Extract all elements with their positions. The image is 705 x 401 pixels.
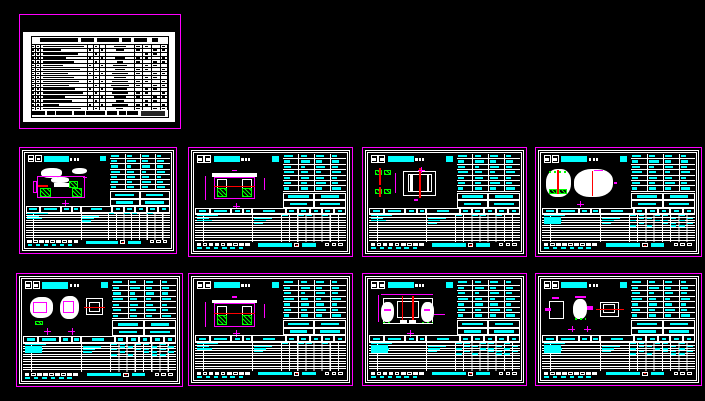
spec-cell	[647, 308, 663, 313]
spec-text-bar	[130, 309, 136, 311]
stamp-text	[545, 158, 548, 161]
strip-title-text	[258, 243, 291, 246]
column-header-row	[542, 208, 695, 215]
spec-cell	[679, 291, 695, 296]
table-tick-bar	[639, 223, 645, 224]
spec-text-bar	[111, 165, 118, 167]
spec-text-bar	[665, 160, 671, 162]
spec-cell	[110, 180, 125, 184]
spec-cell	[457, 186, 473, 190]
spec-cell	[647, 286, 663, 291]
header-dash	[74, 284, 76, 287]
annotation-magenta	[384, 309, 390, 312]
column-header-cell	[252, 208, 285, 215]
table-tick-bar	[630, 215, 636, 216]
spec-box-text	[288, 195, 308, 197]
strip-note-text	[128, 241, 141, 244]
spec-box-text	[288, 323, 308, 326]
hatch-block	[559, 189, 567, 194]
spec-cell	[679, 176, 695, 180]
fill-white	[410, 174, 413, 192]
spec-cell	[631, 176, 647, 180]
sheet-9[interactable]	[535, 273, 702, 386]
strip-title-text	[258, 372, 291, 375]
spec-text-bar	[142, 181, 151, 183]
cad-canvas	[0, 0, 705, 401]
hatch-block	[72, 188, 82, 196]
strip-dash	[586, 247, 591, 249]
column-header-cell	[683, 335, 695, 342]
spec-cell	[663, 280, 679, 285]
sheet-5[interactable]	[535, 147, 702, 257]
table-tick-bar	[168, 351, 174, 352]
annotation-magenta	[587, 306, 592, 310]
spec-text-bar	[475, 298, 482, 300]
column-header-text	[289, 210, 294, 212]
strip-box	[395, 243, 400, 246]
spec-cell	[504, 302, 520, 307]
spec-cell	[125, 164, 140, 168]
spec-text-bar	[332, 171, 340, 173]
table-text-bar	[197, 346, 209, 347]
spec-cell	[472, 308, 488, 313]
strip-dash	[44, 244, 48, 246]
strip-note-text	[476, 372, 490, 375]
sheet-4[interactable]	[362, 147, 527, 257]
strip-title-text	[86, 241, 118, 244]
spec-text-bar	[665, 155, 672, 157]
table-tick-bar	[679, 225, 685, 226]
spec-text-bar	[649, 177, 657, 179]
strip-box	[574, 372, 579, 376]
hatch-block	[549, 189, 557, 194]
spec-box-cell	[314, 200, 346, 208]
spec-box-text	[119, 331, 137, 334]
spec-cell	[663, 297, 679, 302]
spec-cell	[472, 165, 488, 169]
spec-cell	[110, 154, 125, 158]
spec-text-bar	[665, 292, 673, 294]
column-header-cell	[139, 336, 151, 343]
strip-dash	[34, 377, 39, 379]
spec-text-bar	[475, 303, 483, 305]
spec-cell	[140, 170, 155, 174]
spec-text-bar	[332, 155, 337, 157]
spec-cell	[647, 297, 663, 302]
column-header-text	[463, 338, 468, 340]
bottom-table	[542, 342, 695, 371]
strip-box	[239, 372, 244, 376]
header-strip	[195, 154, 281, 165]
spec-cell	[160, 308, 176, 313]
spec-box-cell	[283, 200, 315, 208]
strip-box	[377, 243, 382, 246]
spec-cell	[679, 297, 695, 302]
table-tick-bar	[464, 343, 469, 344]
strip-dash	[230, 376, 235, 378]
spec-text-bar	[506, 187, 514, 189]
column-header-cell	[426, 335, 459, 342]
column-header-text	[650, 210, 655, 212]
table-tick-bar	[111, 349, 117, 350]
spec-text-bar	[162, 292, 168, 294]
spec-cell	[504, 313, 520, 318]
table-tick-bar	[496, 346, 501, 347]
spec-cell	[504, 291, 520, 296]
spec-cell	[457, 302, 473, 307]
spec-text-bar	[681, 160, 688, 162]
spec-cell	[631, 165, 647, 169]
sheet-2[interactable]	[19, 147, 177, 254]
spec-box-cell	[140, 191, 170, 198]
spec-box-row	[631, 320, 695, 328]
column-header-text	[373, 210, 381, 212]
spec-text-bar	[316, 309, 326, 311]
column-header-cell	[298, 208, 310, 215]
strip-box	[325, 243, 330, 246]
column-header-cell	[542, 335, 557, 342]
spec-cell	[125, 185, 140, 189]
spec-table	[110, 154, 170, 206]
spec-text-bar	[458, 309, 466, 311]
spec-text-bar	[506, 166, 512, 168]
spec-text-bar	[284, 309, 292, 311]
column-header-text	[437, 338, 449, 340]
spec-text-bar	[649, 187, 656, 189]
strip-note-text	[132, 373, 146, 376]
table-tick-bar	[322, 343, 327, 344]
hatch-block	[69, 181, 78, 188]
table-grid-right	[281, 342, 346, 371]
column-header-text	[388, 210, 401, 212]
column-header-text	[420, 210, 424, 212]
strip-box	[586, 243, 591, 246]
strip-box	[332, 372, 337, 376]
spec-cell	[647, 181, 663, 185]
strip-box	[39, 240, 44, 243]
sheet-3[interactable]	[188, 147, 353, 257]
table-text-bar	[82, 216, 99, 217]
spec-box-cell	[488, 320, 520, 328]
spec-text-bar	[316, 314, 322, 316]
column-header-cell	[579, 335, 591, 342]
sheet-title-text	[42, 282, 68, 289]
strip-dash	[25, 377, 30, 379]
strip-box	[74, 240, 79, 243]
spec-text-bar	[301, 309, 307, 311]
stamp-text	[545, 284, 548, 287]
spec-cell	[314, 291, 330, 296]
table-tick-bar	[679, 348, 685, 349]
spec-cell	[330, 286, 346, 291]
spec-text-bar	[458, 281, 467, 283]
table-tick-bar	[152, 351, 158, 352]
table-tick-bar	[663, 223, 669, 224]
spec-text-bar	[490, 166, 498, 168]
spec-text-bar	[681, 171, 689, 173]
spec-cell	[504, 181, 520, 185]
table-tick-bar	[496, 353, 501, 354]
strip-box	[25, 373, 30, 377]
spec-cell	[298, 297, 314, 302]
sheet-6[interactable]	[16, 273, 183, 387]
spec-text-bar	[332, 298, 340, 300]
stamp-text	[206, 158, 209, 161]
sheet-content	[542, 280, 695, 379]
strip-box	[556, 372, 561, 376]
spec-cell	[125, 170, 140, 174]
spec-text-bar	[649, 155, 655, 157]
strip-title-text	[606, 372, 640, 375]
strip-dash	[67, 377, 72, 379]
spec-cell	[679, 181, 695, 185]
spec-cell	[504, 159, 520, 163]
annotation-magenta	[83, 177, 86, 179]
spec-cell	[663, 181, 679, 185]
spec-text-bar	[142, 165, 150, 167]
dim-line	[205, 176, 206, 200]
strip-seal-box	[642, 243, 647, 247]
spec-text-bar	[162, 315, 170, 317]
spec-cell	[283, 181, 299, 185]
spec-box-row	[110, 199, 170, 206]
spec-text-bar	[130, 315, 137, 317]
column-header-text	[214, 338, 227, 340]
outline-magenta	[63, 301, 74, 314]
spec-cell	[647, 280, 663, 285]
spec-table	[457, 280, 520, 335]
spec-text-bar	[332, 292, 338, 294]
sheet-title-text	[214, 156, 240, 162]
stamp-text	[372, 284, 375, 287]
spec-cell	[298, 308, 314, 313]
spec-cell	[112, 286, 128, 291]
spec-cell	[504, 286, 520, 291]
spec-cell	[679, 286, 695, 291]
strip-box	[203, 243, 208, 246]
spec-cell	[160, 291, 176, 296]
spec-cell	[647, 302, 663, 307]
spec-cell	[488, 280, 504, 285]
spec-text-bar	[475, 182, 481, 184]
spec-cell	[504, 165, 520, 169]
spec-text-bar	[127, 171, 134, 173]
strip-box	[687, 372, 692, 376]
column-header-cell	[460, 208, 472, 215]
spec-box-row	[457, 193, 520, 201]
spec-cell	[298, 291, 314, 296]
annotation-magenta	[414, 199, 418, 201]
spec-text-bar	[142, 171, 147, 173]
table-text-bar	[83, 349, 95, 350]
spec-text-bar	[332, 182, 338, 184]
strip-box	[197, 372, 202, 376]
table-tick-bar	[663, 215, 669, 216]
spec-cell	[457, 181, 473, 185]
spec-cell	[488, 308, 504, 313]
table-highlight-block	[371, 345, 388, 352]
column-header-text	[593, 338, 597, 340]
drawing-area	[369, 291, 455, 336]
spec-text-bar	[506, 287, 513, 289]
spec-cell	[457, 176, 473, 180]
spec-cell	[330, 176, 346, 180]
bottom-table	[369, 342, 520, 371]
spec-cell	[330, 170, 346, 174]
axis-line	[214, 186, 255, 187]
column-header-row	[195, 208, 346, 215]
spec-text-bar	[458, 177, 464, 179]
table-tick-bar	[480, 348, 485, 349]
spec-text-bar	[111, 155, 119, 157]
spec-cell	[647, 165, 663, 169]
sheet-7[interactable]	[188, 273, 353, 386]
spec-cell	[647, 154, 663, 158]
spec-row	[457, 186, 520, 191]
column-header-row	[23, 336, 176, 343]
header-text-bar	[97, 38, 119, 42]
spec-text-bar	[130, 292, 135, 294]
title-block-strip	[369, 371, 520, 379]
spec-cell	[314, 154, 330, 158]
spec-cell	[140, 164, 155, 168]
spec-cell	[125, 180, 140, 184]
sheet-content	[26, 154, 170, 247]
spec-text-bar	[113, 292, 121, 294]
table-tick-bar	[663, 220, 669, 221]
bottom-table	[23, 343, 176, 372]
table-tick-bar	[512, 351, 517, 352]
title-block-strip	[542, 242, 695, 250]
spec-text-bar	[506, 292, 512, 294]
spec-box-text	[115, 194, 134, 196]
hatch-block	[217, 188, 226, 198]
spec-row	[283, 186, 346, 191]
spec-row	[110, 185, 170, 190]
table-text-bar	[428, 348, 440, 349]
spec-cell	[283, 308, 299, 313]
hatch-block	[384, 170, 391, 175]
table-header-row	[32, 37, 168, 44]
table-tick-bar	[488, 348, 493, 349]
table-text-bar	[254, 220, 266, 221]
spec-cell	[504, 308, 520, 313]
spec-cell	[472, 280, 488, 285]
strip-dash	[51, 377, 56, 379]
table-tick-bar	[647, 218, 653, 219]
strip-dash	[371, 376, 376, 378]
spec-cell	[472, 181, 488, 185]
sheet-content	[195, 280, 346, 379]
header-text-bar	[152, 38, 159, 42]
column-header-text	[561, 210, 575, 212]
spec-cell	[330, 302, 346, 307]
spec-cell	[144, 297, 160, 302]
spec-text-bar	[332, 177, 337, 179]
sheet-8[interactable]	[362, 273, 527, 386]
column-header-text	[463, 210, 468, 212]
table-text-bar	[428, 223, 437, 224]
table-tick-bar	[160, 354, 166, 355]
axis-line	[38, 185, 48, 187]
table-tick-bar	[630, 348, 636, 349]
column-header-text	[74, 208, 78, 210]
spec-cell	[647, 186, 663, 190]
strip-box	[687, 243, 692, 246]
table-tick-bar	[679, 215, 685, 216]
annotation-magenta	[614, 182, 617, 185]
table-text-bar	[544, 215, 565, 216]
sheet-1-drawing-list[interactable]	[19, 14, 181, 129]
spec-cell	[314, 302, 330, 307]
strip-seal-box	[123, 373, 128, 377]
spec-box-row	[457, 200, 520, 208]
spec-box-text	[118, 323, 138, 326]
header-dash	[70, 284, 72, 287]
table-tick-bar	[504, 353, 509, 354]
spec-text-bar	[284, 281, 293, 283]
spec-cell	[647, 176, 663, 180]
center-mark	[418, 167, 425, 174]
column-header-cell	[496, 335, 508, 342]
spec-cell	[314, 308, 330, 313]
spec-cell	[314, 181, 330, 185]
spec-cell	[128, 308, 144, 313]
spec-cell	[488, 176, 504, 180]
spec-cell	[330, 308, 346, 313]
spec-text-bar	[490, 292, 498, 294]
spec-box-text	[464, 203, 482, 205]
center-mark	[568, 326, 575, 333]
footer-text-bar	[86, 111, 105, 115]
spec-cell	[488, 159, 504, 163]
header-dash	[596, 158, 598, 161]
spec-cell	[647, 170, 663, 174]
table-tick-bar	[663, 343, 669, 344]
table-text-bar	[254, 346, 272, 347]
column-header-text	[118, 338, 123, 341]
spec-text-bar	[127, 176, 135, 178]
title-block-strip	[542, 371, 695, 379]
table-highlight-block	[544, 217, 561, 224]
spec-text-bar	[146, 309, 156, 311]
table-text-bar	[197, 215, 218, 216]
table-tick-bar	[306, 343, 311, 344]
spec-cell	[663, 159, 679, 163]
spec-cell	[160, 280, 176, 285]
column-header-text	[325, 210, 330, 212]
strip-box	[221, 372, 226, 376]
table-tick-bar	[687, 351, 693, 352]
sheet-content	[542, 154, 695, 250]
spec-text-bar	[284, 303, 290, 305]
spec-box-text	[320, 330, 340, 333]
column-header-text	[127, 208, 132, 210]
spec-box-cell	[631, 320, 663, 328]
table-text-bar	[83, 351, 92, 352]
spec-row	[112, 314, 176, 320]
spec-cell	[112, 308, 128, 313]
strip-seal-box	[294, 372, 299, 376]
strip-title-text	[606, 243, 640, 246]
column-header-text	[409, 210, 414, 212]
column-header-cell	[646, 335, 658, 342]
hatch-block	[40, 188, 51, 197]
strip-box	[568, 243, 573, 246]
dim-line	[264, 178, 265, 191]
annotation-magenta	[232, 170, 237, 171]
strip-title-text	[432, 372, 465, 375]
